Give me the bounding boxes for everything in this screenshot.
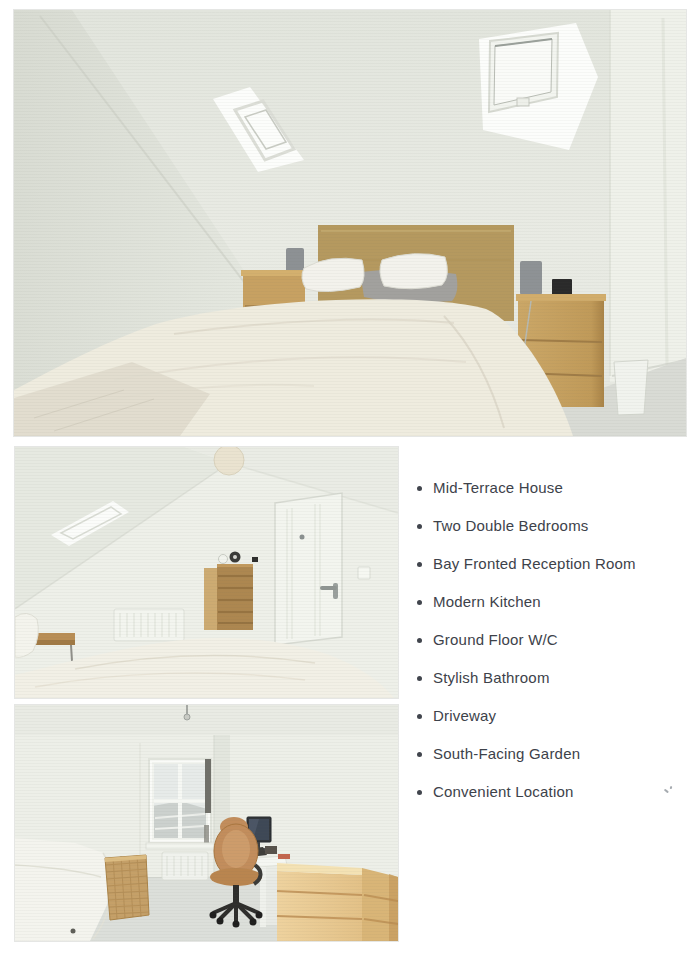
bullet-icon (417, 486, 422, 491)
lamp-right (520, 261, 542, 295)
photo-attic-bedroom-door-scene (15, 447, 398, 698)
small-box (243, 555, 251, 562)
feature-item: South-Facing Garden (417, 746, 687, 762)
bullet-icon (417, 600, 422, 605)
door-handle-plate (333, 583, 338, 599)
window (146, 759, 214, 849)
photo-attic-bedroom-main-scene (14, 10, 686, 436)
feature-list: Mid-Terrace House Two Double Bedrooms Ba… (417, 480, 687, 822)
bed (15, 838, 111, 941)
chest-of-drawers (277, 863, 398, 941)
radiator (114, 609, 184, 641)
bullet-icon (417, 752, 422, 757)
photo-attic-bedroom-main (14, 10, 686, 436)
photo-bedroom-desk (15, 705, 398, 941)
feature-label: Ground Floor W/C (433, 632, 558, 648)
waste-bin (614, 360, 648, 415)
feature-item: Bay Fronted Reception Room (417, 556, 687, 572)
feature-item: Stylish Bathroom (417, 670, 687, 686)
small-dark-box (252, 557, 258, 562)
ceiling-lamp (214, 447, 244, 475)
photo-attic-bedroom-door (15, 447, 398, 698)
feature-item: Two Double Bedrooms (417, 518, 687, 534)
brochure-page: Mid-Terrace House Two Double Bedrooms Ba… (0, 0, 698, 960)
bullet-icon (417, 524, 422, 529)
feature-label: Mid-Terrace House (433, 480, 563, 496)
bullet-icon (417, 790, 422, 795)
door (275, 493, 342, 645)
white-clock (219, 555, 228, 564)
feature-item: Ground Floor W/C (417, 632, 687, 648)
bullet-icon (417, 562, 422, 567)
feature-label: Stylish Bathroom (433, 670, 550, 686)
bullet-icon (417, 676, 422, 681)
feature-item: Driveway (417, 708, 687, 724)
feature-item: Convenient Location (417, 784, 687, 800)
window-blind (205, 759, 211, 813)
photo-bedroom-desk-scene (15, 705, 398, 941)
feature-label: South-Facing Garden (433, 746, 580, 762)
window-sill (146, 843, 214, 849)
red-desk-item (278, 854, 290, 859)
wicker-basket (105, 855, 149, 920)
feature-label: Driveway (433, 708, 496, 724)
right-wall (610, 10, 686, 382)
feature-label: Convenient Location (433, 784, 574, 800)
light-switch (358, 567, 370, 579)
alarm-clock (552, 279, 572, 295)
bullet-icon (417, 714, 422, 719)
radiator (162, 852, 208, 880)
feature-label: Modern Kitchen (433, 594, 541, 610)
feature-label: Two Double Bedrooms (433, 518, 589, 534)
feature-item: Modern Kitchen (417, 594, 687, 610)
bullet-icon (417, 638, 422, 643)
door-handle (320, 586, 337, 590)
peephole (300, 535, 305, 540)
feature-label: Bay Fronted Reception Room (433, 556, 636, 572)
feature-item: Mid-Terrace House (417, 480, 687, 496)
